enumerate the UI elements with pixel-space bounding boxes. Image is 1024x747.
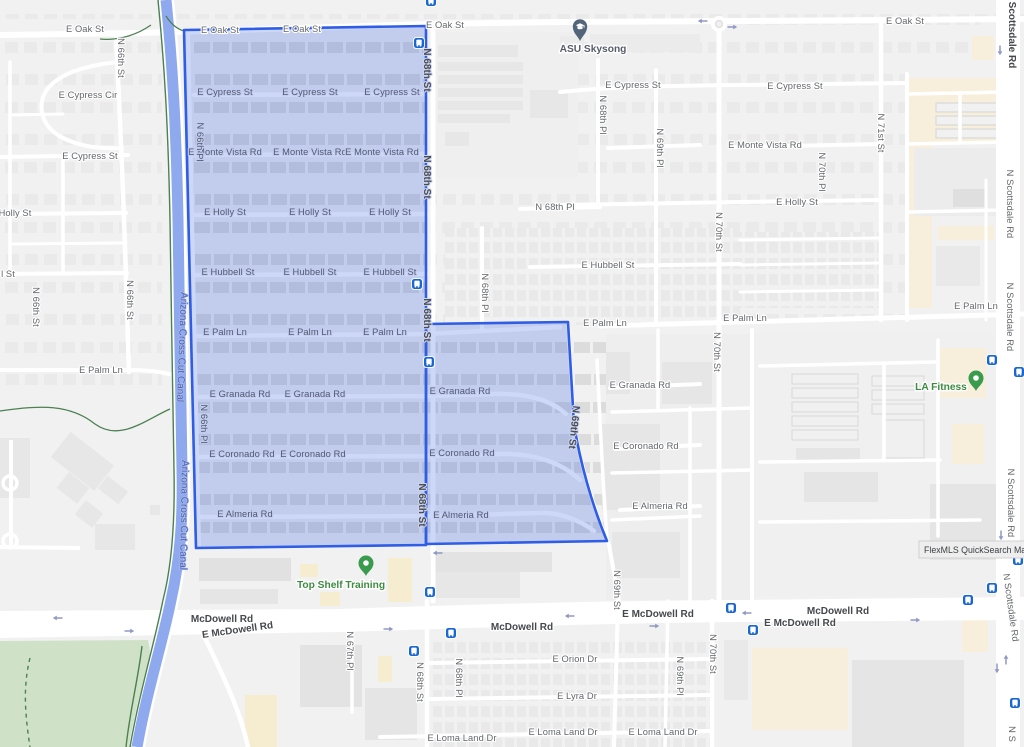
svg-text:N 68th St: N 68th St: [421, 155, 432, 199]
svg-text:E Loma Land Dr: E Loma Land Dr: [628, 727, 697, 737]
svg-text:McDowell Rd: McDowell Rd: [807, 606, 869, 617]
svg-text:E Cypress St: E Cypress St: [282, 87, 338, 97]
svg-text:E Palm Ln: E Palm Ln: [79, 365, 123, 375]
svg-text:E Oak St: E Oak St: [201, 25, 239, 35]
svg-text:E Cypress St: E Cypress St: [364, 87, 420, 97]
svg-text:N 68th St: N 68th St: [416, 483, 427, 527]
svg-text:N 70th St: N 70th St: [712, 332, 722, 372]
svg-text:N 66th St: N 66th St: [125, 280, 135, 320]
svg-text:E Loma Land Dr: E Loma Land Dr: [528, 727, 597, 737]
svg-text:E Holly St: E Holly St: [204, 207, 246, 217]
svg-text:E Palm Ln: E Palm Ln: [583, 318, 627, 328]
svg-text:E Granada Rd: E Granada Rd: [210, 389, 271, 399]
svg-text:Scottsdale Rd: Scottsdale Rd: [1006, 2, 1017, 69]
svg-text:E McDowell Rd: E McDowell Rd: [622, 609, 694, 620]
svg-text:N 71st St: N 71st St: [876, 113, 886, 152]
svg-text:N Scottsdale Rd: N Scottsdale Rd: [1006, 469, 1016, 538]
svg-text:FlexMLS QuickSearch Map: FlexMLS QuickSearch Map: [924, 545, 1024, 555]
svg-text:E Cypress Cir: E Cypress Cir: [59, 90, 118, 100]
svg-text:E Orion Dr: E Orion Dr: [553, 654, 598, 664]
svg-text:E Almeria Rd: E Almeria Rd: [433, 510, 488, 520]
svg-text:E Granada Rd: E Granada Rd: [430, 386, 491, 396]
svg-text:N 66th St: N 66th St: [116, 38, 126, 78]
svg-text:E Cypress St: E Cypress St: [605, 80, 661, 90]
svg-text:E Coronado Rd: E Coronado Rd: [209, 449, 274, 459]
svg-text:E Loma Land Dr: E Loma Land Dr: [427, 733, 496, 743]
svg-text:E Hubbell St: E Hubbell St: [202, 267, 255, 277]
svg-text:E Cypress St: E Cypress St: [197, 87, 253, 97]
svg-text:N 69th Pl: N 69th Pl: [675, 656, 685, 695]
svg-text:N 68th Pl: N 68th Pl: [454, 658, 464, 697]
svg-text:N 70th St: N 70th St: [714, 212, 724, 252]
svg-text:E Granada Rd: E Granada Rd: [285, 389, 346, 399]
svg-text:E Oak St: E Oak St: [426, 20, 464, 30]
svg-text:E Oak St: E Oak St: [886, 16, 924, 26]
svg-text:E Hubbell St: E Hubbell St: [284, 267, 337, 277]
svg-text:E Granada Rd: E Granada Rd: [610, 380, 671, 390]
svg-text:N 68th Pl: N 68th Pl: [480, 273, 490, 312]
svg-text:N S: N S: [1007, 726, 1017, 742]
svg-text:N 66th St: N 66th St: [31, 287, 41, 327]
svg-text:E Holly St: E Holly St: [776, 197, 818, 207]
svg-text:N 66th Pl: N 66th Pl: [199, 404, 209, 443]
svg-text:E McDowell Rd: E McDowell Rd: [764, 618, 836, 629]
svg-text:E Cypress St: E Cypress St: [767, 81, 823, 91]
svg-text:E Oak St: E Oak St: [283, 24, 321, 34]
svg-text:E Almeria Rd: E Almeria Rd: [632, 501, 687, 511]
svg-text:E Holly St: E Holly St: [289, 207, 331, 217]
svg-text:N 66th Pl: N 66th Pl: [195, 122, 206, 161]
svg-text:E Palm Ln: E Palm Ln: [954, 301, 998, 311]
svg-text:E Monte Vista Rd: E Monte Vista Rd: [345, 147, 419, 157]
svg-text:Top Shelf Training: Top Shelf Training: [297, 580, 385, 591]
svg-text:N 70th Pl: N 70th Pl: [817, 152, 827, 191]
svg-text:E Coronado Rd: E Coronado Rd: [280, 449, 345, 459]
svg-text:N 68th St: N 68th St: [421, 298, 432, 342]
svg-text:N 69th St: N 69th St: [612, 570, 622, 610]
svg-text:E Monte Vista Rd: E Monte Vista Rd: [728, 140, 802, 150]
svg-text:Holly St: Holly St: [0, 208, 32, 218]
svg-text:E Lyra Dr: E Lyra Dr: [557, 691, 597, 701]
svg-text:E Palm Ln: E Palm Ln: [363, 327, 407, 337]
svg-text:N 68th St: N 68th St: [421, 48, 432, 92]
svg-text:E Palm Ln: E Palm Ln: [203, 327, 247, 337]
svg-text:N 68th Pl: N 68th Pl: [598, 95, 608, 134]
svg-text:E Monte Vista Rd: E Monte Vista Rd: [273, 147, 347, 157]
svg-text:E Palm Ln: E Palm Ln: [723, 313, 767, 323]
svg-text:E Hubbell St: E Hubbell St: [364, 267, 417, 277]
svg-text:N 70th St: N 70th St: [708, 634, 718, 674]
svg-text:N Scottsdale Rd: N Scottsdale Rd: [1005, 170, 1015, 239]
svg-text:N 67th Pl: N 67th Pl: [345, 631, 355, 670]
svg-text:ASU Skysong: ASU Skysong: [560, 44, 627, 55]
svg-text:l St: l St: [1, 269, 15, 279]
svg-text:E Holly St: E Holly St: [369, 207, 411, 217]
svg-text:McDowell Rd: McDowell Rd: [491, 622, 553, 633]
svg-text:N 69th Pl: N 69th Pl: [655, 128, 665, 167]
svg-text:N 68th St: N 68th St: [415, 662, 425, 702]
svg-text:E Oak St: E Oak St: [66, 24, 104, 34]
svg-text:N Scottsdale Rd: N Scottsdale Rd: [1005, 283, 1015, 352]
svg-text:E Coronado Rd: E Coronado Rd: [613, 441, 678, 451]
svg-text:LA Fitness: LA Fitness: [915, 382, 967, 393]
svg-text:N 68th Pl: N 68th Pl: [535, 202, 574, 212]
svg-text:E Almeria Rd: E Almeria Rd: [217, 509, 272, 519]
svg-text:Arizona Cross Cut Canal: Arizona Cross Cut Canal: [177, 460, 190, 570]
svg-text:E Hubbell St: E Hubbell St: [582, 260, 635, 270]
svg-text:E Coronado Rd: E Coronado Rd: [429, 448, 494, 458]
svg-text:E Cypress St: E Cypress St: [62, 151, 118, 161]
svg-text:E Palm Ln: E Palm Ln: [288, 327, 332, 337]
